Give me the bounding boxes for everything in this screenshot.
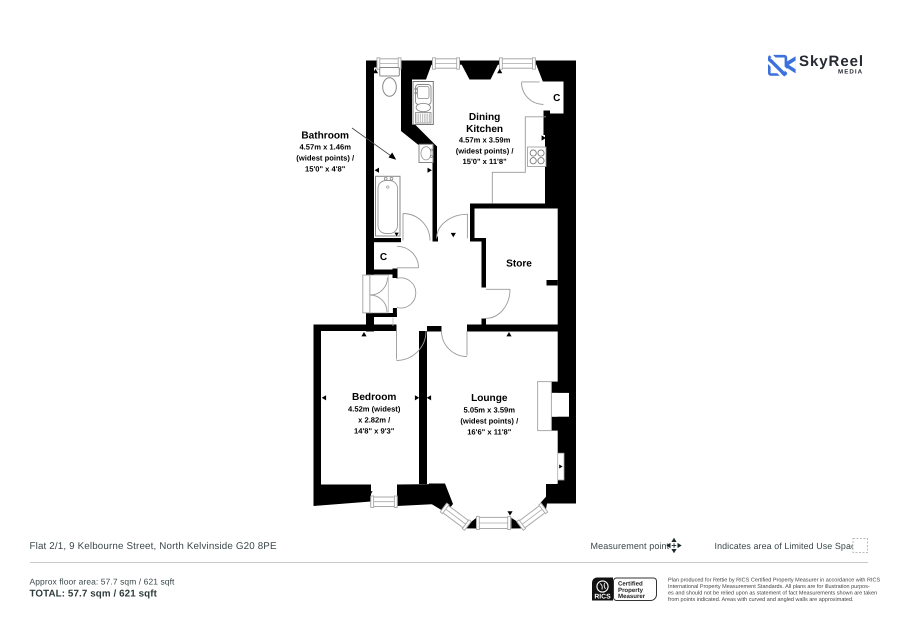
svg-text:Indicates area of Limited Use: Indicates area of Limited Use Space: [715, 541, 861, 551]
svg-text:Kitchen: Kitchen: [466, 124, 503, 135]
svg-text:15'0" x 4'8": 15'0" x 4'8": [305, 165, 346, 174]
svg-text:Measurer: Measurer: [618, 593, 646, 600]
svg-text:4.52m (widest): 4.52m (widest): [348, 404, 401, 413]
svg-text:Flat 2/1, 9 Kelbourne Street,: Flat 2/1, 9 Kelbourne Street, North Kelv…: [30, 541, 277, 552]
svg-text:MEDIA: MEDIA: [838, 69, 863, 76]
svg-text:Lounge: Lounge: [471, 393, 508, 404]
svg-text:5.05m x 3.59m: 5.05m x 3.59m: [464, 405, 516, 414]
svg-text:x 2.82m /: x 2.82m /: [358, 415, 391, 424]
svg-text:Bedroom: Bedroom: [352, 392, 396, 403]
svg-text:Bathroom: Bathroom: [301, 131, 349, 142]
svg-text:International Property Measur: International Property Measurement Stand…: [668, 584, 870, 590]
svg-text:14'8" x 9'3": 14'8" x 9'3": [354, 427, 395, 436]
svg-text:Store: Store: [506, 259, 532, 270]
svg-text:Plan produced for Rettie by RI: Plan produced for Rettie by RICS Certifi…: [668, 578, 880, 584]
svg-text:SkyReel: SkyReel: [799, 53, 864, 70]
svg-text:from points indicated. Areas w: from points indicated. Areas with curved…: [668, 597, 854, 603]
svg-text:(widest points) /: (widest points) /: [456, 147, 515, 156]
svg-text:C: C: [380, 252, 387, 263]
svg-text:15'0" x 11'8": 15'0" x 11'8": [463, 157, 508, 166]
svg-text:16'6" x 11'8": 16'6" x 11'8": [467, 428, 512, 437]
svg-text:TOTAL: 57.7 sqm / 621 sqft: TOTAL: 57.7 sqm / 621 sqft: [30, 589, 158, 600]
svg-text:es and should not be relied up: es and should not be relied upon as stat…: [668, 591, 877, 597]
svg-text:4.57m x 1.46m: 4.57m x 1.46m: [299, 143, 351, 152]
svg-text:Measurement point: Measurement point: [591, 541, 670, 551]
svg-text:Dining: Dining: [469, 112, 500, 123]
svg-text:C: C: [553, 93, 560, 104]
svg-text:(widest points) /: (widest points) /: [296, 154, 355, 163]
svg-text:(widest points) /: (widest points) /: [460, 416, 519, 425]
svg-text:RICS: RICS: [594, 594, 611, 601]
svg-text:Approx floor area: 57.7 sqm /: Approx floor area: 57.7 sqm / 621 sqft: [30, 577, 176, 587]
svg-text:4.57m x 3.59m: 4.57m x 3.59m: [459, 136, 511, 145]
